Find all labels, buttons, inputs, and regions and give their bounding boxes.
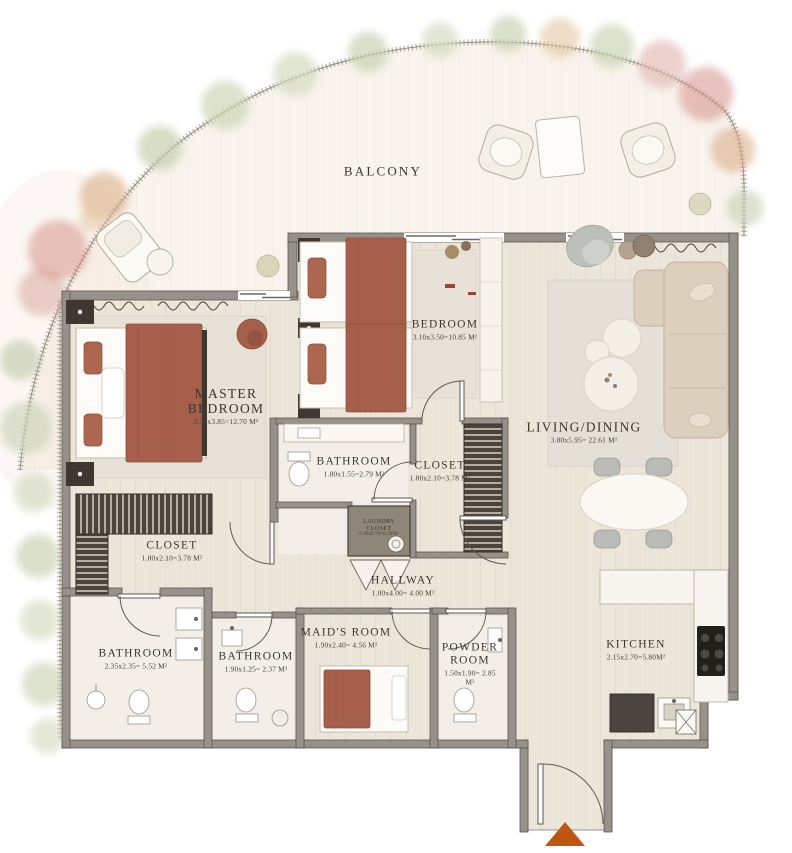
floor-plan-drawing [0, 0, 792, 853]
kitchen-cabinet [610, 694, 654, 732]
twin-beds [298, 238, 412, 418]
maid-bed [320, 666, 408, 732]
master-bed [66, 300, 207, 486]
balcony-plant-pot-right [689, 193, 711, 215]
balcony-side-table [147, 249, 173, 275]
balcony-table [535, 116, 585, 178]
balcony-plant-pot-left [257, 255, 279, 277]
floor-plan: BALCONY MASTER BEDROOM 3.30x3.85=12.70 M… [0, 0, 792, 853]
master-armchair [237, 319, 267, 349]
